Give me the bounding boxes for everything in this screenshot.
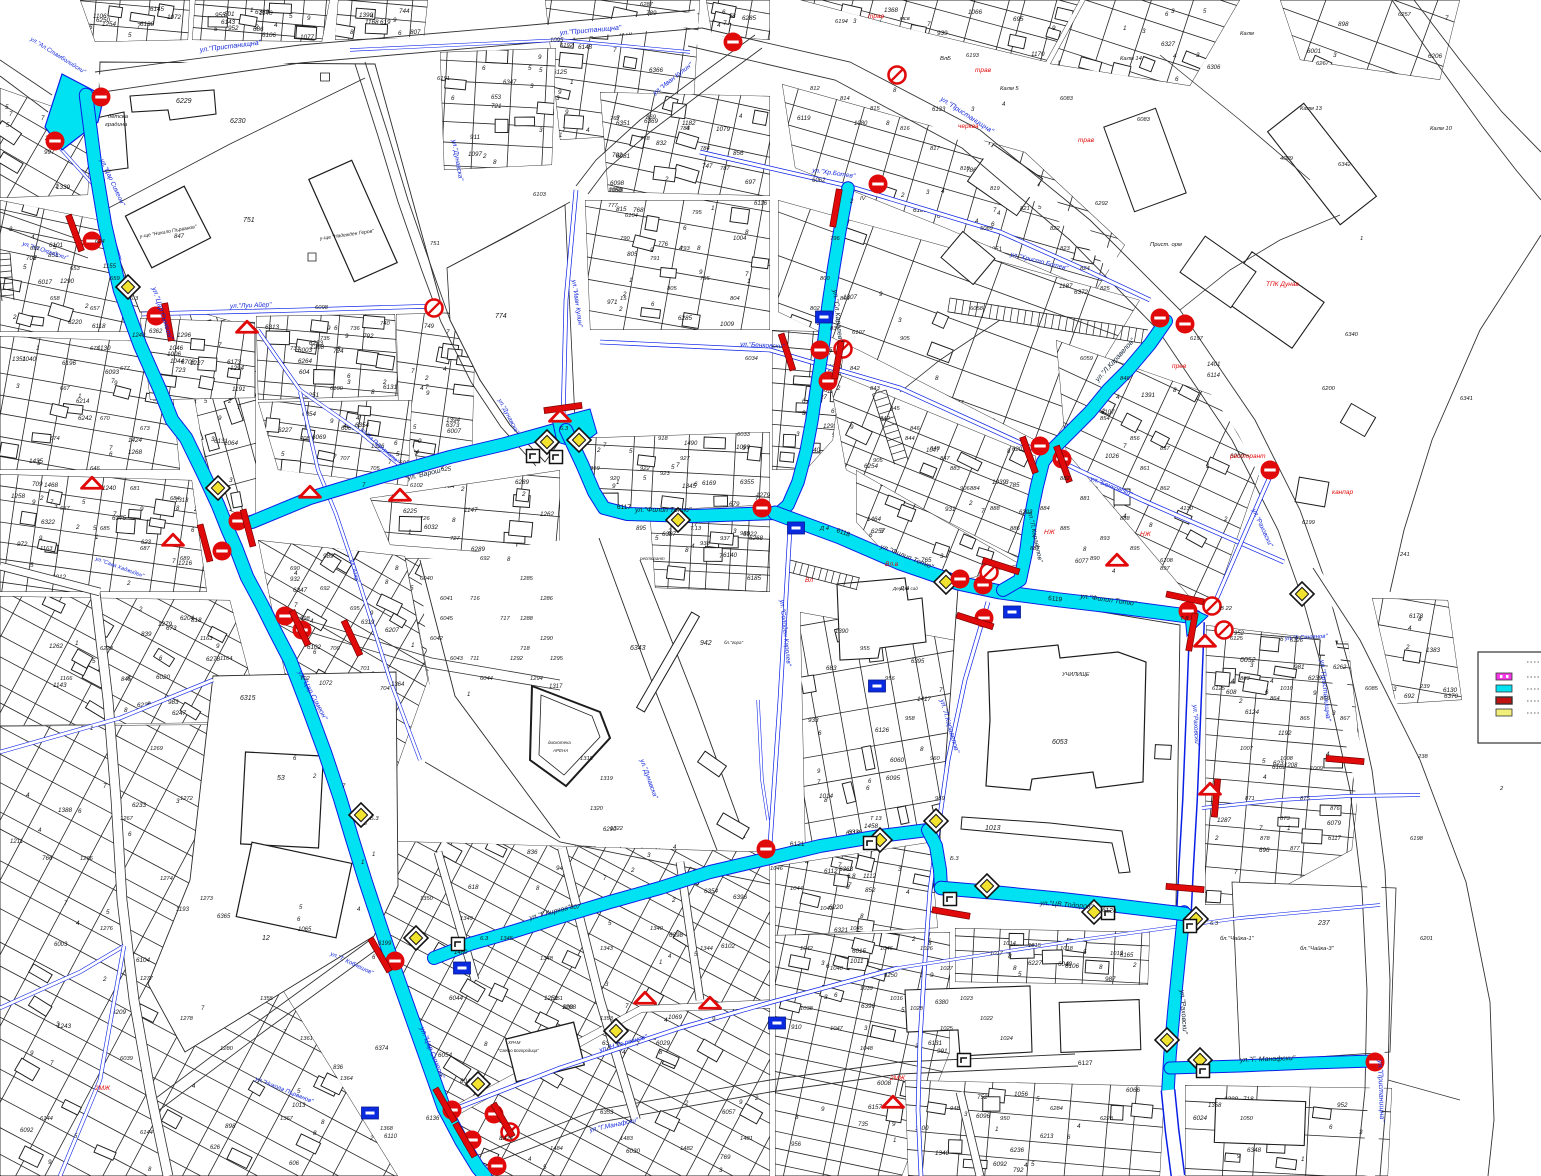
svg-text:823: 823 xyxy=(1060,246,1070,252)
svg-text:1262: 1262 xyxy=(540,511,555,518)
svg-text:6116: 6116 xyxy=(754,201,768,207)
svg-text:5: 5 xyxy=(214,26,218,33)
svg-text:7: 7 xyxy=(111,378,115,385)
svg-text:1266: 1266 xyxy=(80,856,94,862)
svg-text:619: 619 xyxy=(380,19,391,26)
svg-text:792: 792 xyxy=(363,333,374,340)
svg-text:9: 9 xyxy=(393,17,397,24)
svg-text:6104: 6104 xyxy=(136,957,151,964)
svg-text:684: 684 xyxy=(170,496,180,502)
svg-text:886: 886 xyxy=(1010,526,1020,532)
svg-text:937: 937 xyxy=(720,536,730,542)
svg-text:971: 971 xyxy=(607,299,618,306)
svg-text:2: 2 xyxy=(911,936,916,943)
svg-text:832: 832 xyxy=(656,140,667,147)
svg-text:241: 241 xyxy=(1399,552,1410,558)
svg-text:6236: 6236 xyxy=(1010,1147,1025,1154)
svg-text:897: 897 xyxy=(1160,566,1170,572)
svg-text:9: 9 xyxy=(930,972,934,979)
svg-text:3: 3 xyxy=(880,528,884,535)
svg-text:969: 969 xyxy=(935,796,945,802)
svg-text:884: 884 xyxy=(1040,506,1050,512)
svg-text:6.3: 6.3 xyxy=(1210,921,1219,927)
svg-text:6347: 6347 xyxy=(503,80,517,86)
svg-text:детска: детска xyxy=(108,114,129,120)
svg-text:6079: 6079 xyxy=(1327,820,1342,827)
svg-text:1079: 1079 xyxy=(716,126,731,133)
svg-text:9: 9 xyxy=(327,325,331,332)
svg-text:4: 4 xyxy=(1263,774,1267,781)
svg-text:ХРАМ: ХРАМ xyxy=(507,1040,521,1045)
svg-text:7: 7 xyxy=(562,127,566,134)
svg-text:5: 5 xyxy=(289,13,293,20)
svg-text:1163: 1163 xyxy=(200,636,213,642)
svg-text:прев: прев xyxy=(1172,363,1187,370)
svg-text:8: 8 xyxy=(1099,964,1103,971)
svg-text:3: 3 xyxy=(530,83,534,90)
svg-text:1481: 1481 xyxy=(740,1136,753,1142)
svg-text:1112: 1112 xyxy=(863,873,877,880)
svg-text:1: 1 xyxy=(629,277,633,284)
svg-text:6020: 6020 xyxy=(156,674,171,681)
svg-text:9: 9 xyxy=(426,390,430,397)
svg-text:5: 5 xyxy=(92,658,96,665)
svg-text:8: 8 xyxy=(860,913,864,920)
svg-text:4: 4 xyxy=(586,127,590,134)
svg-text:7: 7 xyxy=(218,342,222,349)
svg-text:646: 646 xyxy=(90,466,100,472)
svg-text:6114: 6114 xyxy=(1207,373,1221,379)
svg-text:735: 735 xyxy=(320,336,330,342)
svg-text:695: 695 xyxy=(350,606,360,612)
svg-text:6197: 6197 xyxy=(1190,336,1204,342)
svg-text:8: 8 xyxy=(685,547,689,554)
svg-text:687: 687 xyxy=(140,546,150,552)
svg-text:1340: 1340 xyxy=(650,926,664,932)
svg-text:6144: 6144 xyxy=(140,1130,153,1136)
svg-text:6: 6 xyxy=(394,440,398,447)
svg-text:1047: 1047 xyxy=(830,1026,844,1032)
svg-text:8: 8 xyxy=(852,873,856,880)
svg-text:1286: 1286 xyxy=(540,596,554,602)
svg-text:6077: 6077 xyxy=(1075,559,1089,565)
svg-text:848: 848 xyxy=(930,446,940,452)
svg-text:6083: 6083 xyxy=(1060,96,1074,102)
svg-text:1064: 1064 xyxy=(224,440,239,447)
svg-text:726: 726 xyxy=(420,516,430,522)
svg-text:мсв: мсв xyxy=(900,16,910,22)
svg-text:1288: 1288 xyxy=(520,616,534,622)
svg-text:6229: 6229 xyxy=(176,98,192,105)
svg-text:1043: 1043 xyxy=(820,906,834,912)
svg-text:2: 2 xyxy=(75,524,80,531)
svg-text:6362: 6362 xyxy=(149,329,163,335)
svg-text:1401: 1401 xyxy=(1207,362,1220,368)
svg-text:6104: 6104 xyxy=(625,213,638,219)
svg-text:8: 8 xyxy=(1149,522,1153,529)
svg-text:1048: 1048 xyxy=(860,1046,874,1052)
svg-text:трав: трав xyxy=(1078,137,1095,144)
svg-text:8: 8 xyxy=(920,746,924,753)
svg-text:1028: 1028 xyxy=(910,1006,924,1012)
svg-text:6126: 6126 xyxy=(1290,638,1304,644)
svg-text:800: 800 xyxy=(820,276,830,282)
svg-text:6044: 6044 xyxy=(480,676,493,682)
svg-text:6178: 6178 xyxy=(1409,613,1424,620)
svg-text:6185: 6185 xyxy=(747,575,762,582)
svg-text:2: 2 xyxy=(138,606,143,613)
svg-text:7: 7 xyxy=(294,602,298,609)
svg-text:1: 1 xyxy=(1123,25,1127,32)
svg-text:1192: 1192 xyxy=(1278,730,1292,737)
svg-text:6: 6 xyxy=(722,9,726,16)
svg-text:1364: 1364 xyxy=(391,682,405,688)
svg-text:1279: 1279 xyxy=(158,621,173,628)
svg-text:1322: 1322 xyxy=(610,826,624,832)
svg-text:676: 676 xyxy=(90,346,100,352)
svg-text:1009: 1009 xyxy=(1310,766,1324,772)
svg-text:1458: 1458 xyxy=(864,823,879,830)
svg-text:4: 4 xyxy=(1024,1162,1028,1169)
svg-text:938: 938 xyxy=(700,541,710,547)
svg-text:673: 673 xyxy=(140,426,150,432)
svg-text:4: 4 xyxy=(1173,53,1177,60)
svg-text:Вл: Вл xyxy=(805,577,813,584)
svg-text:6107: 6107 xyxy=(852,330,866,336)
svg-text:6396: 6396 xyxy=(861,1003,876,1010)
svg-text:2: 2 xyxy=(1214,835,1219,842)
svg-text:735: 735 xyxy=(858,1122,869,1128)
svg-text:53: 53 xyxy=(277,775,285,782)
svg-text:895: 895 xyxy=(636,526,647,532)
svg-text:8: 8 xyxy=(745,229,749,236)
svg-text:681: 681 xyxy=(130,486,140,492)
svg-text:871: 871 xyxy=(1245,796,1255,802)
svg-text:1038: 1038 xyxy=(800,1006,814,1012)
svg-text:9: 9 xyxy=(538,54,542,61)
svg-text:796: 796 xyxy=(830,236,840,242)
svg-text:1290: 1290 xyxy=(540,636,554,642)
svg-text:816: 816 xyxy=(900,126,910,132)
svg-text:9: 9 xyxy=(892,1121,896,1128)
svg-text:5: 5 xyxy=(528,65,532,72)
svg-text:3: 3 xyxy=(821,960,825,967)
svg-text:1077: 1077 xyxy=(300,34,315,41)
svg-text:1046: 1046 xyxy=(880,946,894,952)
svg-text:942: 942 xyxy=(700,640,712,647)
svg-text:866: 866 xyxy=(1320,696,1330,702)
svg-text:711: 711 xyxy=(470,656,479,662)
svg-text:6353: 6353 xyxy=(600,1110,614,1116)
svg-text:3: 3 xyxy=(211,436,215,443)
svg-text:5: 5 xyxy=(543,1164,547,1171)
svg-text:4: 4 xyxy=(691,543,695,550)
svg-text:5: 5 xyxy=(23,264,27,271)
svg-text:825: 825 xyxy=(1100,286,1110,292)
svg-text:840: 840 xyxy=(880,416,890,422)
svg-text:6: 6 xyxy=(451,95,455,102)
svg-text:624: 624 xyxy=(95,239,105,245)
svg-text:9: 9 xyxy=(558,89,562,96)
svg-text:836: 836 xyxy=(333,1065,344,1071)
svg-text:1013: 1013 xyxy=(292,1103,306,1109)
svg-text:1417: 1417 xyxy=(917,696,932,703)
svg-text:6: 6 xyxy=(482,65,486,72)
svg-text:1474: 1474 xyxy=(500,1136,513,1142)
svg-text:883: 883 xyxy=(950,466,960,472)
svg-text:948: 948 xyxy=(950,1106,960,1112)
svg-text:1045: 1045 xyxy=(850,926,864,932)
svg-text:950: 950 xyxy=(1000,1116,1010,1122)
svg-text:5: 5 xyxy=(671,464,675,471)
svg-text:807: 807 xyxy=(570,905,581,911)
svg-text:"Свето Богородица": "Свето Богородица" xyxy=(498,1048,539,1053)
svg-text:751: 751 xyxy=(430,241,440,247)
svg-text:683: 683 xyxy=(826,665,837,672)
svg-text:9: 9 xyxy=(32,499,36,506)
svg-text:1025: 1025 xyxy=(940,1026,954,1032)
svg-text:1391: 1391 xyxy=(1141,392,1155,399)
svg-text:1267: 1267 xyxy=(120,816,134,822)
svg-text:895: 895 xyxy=(1130,546,1140,552)
svg-text:6: 6 xyxy=(866,785,870,792)
svg-text:5: 5 xyxy=(1036,1096,1040,1103)
svg-text:Т 13: Т 13 xyxy=(870,816,882,822)
svg-text:6003: 6003 xyxy=(54,942,68,948)
svg-text:6042: 6042 xyxy=(430,636,444,642)
svg-text:3: 3 xyxy=(898,866,902,873)
svg-text:1022: 1022 xyxy=(980,1016,994,1022)
svg-text:898: 898 xyxy=(1338,21,1349,28)
svg-text:864: 864 xyxy=(1270,696,1280,702)
svg-text:6057: 6057 xyxy=(722,1110,736,1116)
svg-text:933: 933 xyxy=(808,717,819,724)
svg-text:3: 3 xyxy=(1171,8,1175,15)
svg-text:1268: 1268 xyxy=(128,449,143,456)
svg-text:1424: 1424 xyxy=(128,437,143,444)
svg-text:6033: 6033 xyxy=(737,432,751,438)
svg-text:4089: 4089 xyxy=(1280,156,1294,162)
svg-text:701: 701 xyxy=(360,666,370,672)
svg-text:626: 626 xyxy=(210,1145,221,1151)
svg-text:787: 787 xyxy=(720,166,730,172)
svg-text:1072: 1072 xyxy=(167,14,182,21)
svg-text:795: 795 xyxy=(692,210,702,216)
svg-text:6227: 6227 xyxy=(278,427,293,434)
svg-text:канпар: канпар xyxy=(1332,489,1353,496)
svg-text:9: 9 xyxy=(418,438,422,445)
svg-text:7: 7 xyxy=(50,1060,54,1067)
svg-text:4: 4 xyxy=(1270,678,1274,685)
svg-text:1: 1 xyxy=(36,346,39,352)
svg-text:692: 692 xyxy=(320,586,330,592)
svg-text:9: 9 xyxy=(650,247,654,254)
svg-text:1026: 1026 xyxy=(1105,453,1120,460)
svg-text:6347: 6347 xyxy=(293,587,308,594)
svg-text:6083: 6083 xyxy=(1137,117,1151,123)
svg-text:1294: 1294 xyxy=(230,365,245,372)
svg-text:956: 956 xyxy=(885,676,895,682)
svg-text:4: 4 xyxy=(443,366,447,373)
svg-text:7: 7 xyxy=(723,20,727,27)
svg-text:698: 698 xyxy=(300,616,310,622)
svg-text:1039: 1039 xyxy=(992,479,1007,486)
svg-text:9: 9 xyxy=(739,1099,743,1106)
svg-text:1383: 1383 xyxy=(1426,647,1441,654)
svg-text:1072: 1072 xyxy=(319,681,333,687)
svg-text:6144: 6144 xyxy=(40,1116,53,1122)
svg-text:989: 989 xyxy=(323,553,334,560)
svg-text:653: 653 xyxy=(70,266,80,272)
svg-text:бл."Чайка-1": бл."Чайка-1" xyxy=(1220,935,1255,942)
svg-text:6145: 6145 xyxy=(150,6,165,13)
svg-text:5: 5 xyxy=(6,122,10,129)
svg-text:653: 653 xyxy=(491,95,502,101)
svg-text:6204: 6204 xyxy=(180,615,195,622)
svg-text:1318: 1318 xyxy=(580,756,594,762)
svg-text:6201: 6201 xyxy=(1420,936,1433,942)
svg-text:6: 6 xyxy=(109,451,113,458)
svg-text:887: 887 xyxy=(1030,546,1040,552)
svg-text:9: 9 xyxy=(612,483,616,490)
svg-text:1: 1 xyxy=(408,529,412,536)
svg-text:2: 2 xyxy=(596,447,601,454)
svg-text:805: 805 xyxy=(667,286,677,292)
svg-text:9: 9 xyxy=(114,380,118,387)
svg-text:1: 1 xyxy=(372,852,375,858)
svg-text:1: 1 xyxy=(1287,825,1291,832)
svg-text:6106: 6106 xyxy=(262,32,277,39)
svg-text:8: 8 xyxy=(1008,953,1012,960)
svg-text:752: 752 xyxy=(977,1094,988,1101)
svg-text:769: 769 xyxy=(720,1154,731,1161)
svg-text:747: 747 xyxy=(702,163,713,170)
svg-text:Калм 13: Калм 13 xyxy=(1300,106,1323,112)
svg-text:1065: 1065 xyxy=(298,927,312,933)
svg-text:1262: 1262 xyxy=(49,643,64,650)
svg-text:1014: 1014 xyxy=(1003,941,1016,947)
svg-text:1066: 1066 xyxy=(968,9,983,16)
svg-text:6292: 6292 xyxy=(1095,201,1109,207)
svg-text:814: 814 xyxy=(840,96,850,102)
svg-text:733: 733 xyxy=(290,346,300,352)
svg-text:9: 9 xyxy=(48,1159,52,1166)
svg-text:2: 2 xyxy=(102,976,107,983)
svg-text:6372: 6372 xyxy=(1074,289,1089,296)
svg-text:7: 7 xyxy=(9,111,13,118)
svg-text:1350: 1350 xyxy=(420,896,434,902)
svg-text:3: 3 xyxy=(54,503,58,510)
svg-text:6053: 6053 xyxy=(1052,739,1068,746)
svg-text:952: 952 xyxy=(228,25,239,32)
svg-text:2: 2 xyxy=(460,486,465,493)
svg-text:7: 7 xyxy=(113,511,117,518)
svg-text:6254: 6254 xyxy=(864,463,879,470)
svg-text:7: 7 xyxy=(1445,15,1449,22)
svg-text:6124: 6124 xyxy=(1245,709,1260,716)
svg-text:7: 7 xyxy=(676,462,680,469)
svg-text:6348: 6348 xyxy=(1247,1147,1262,1154)
svg-text:6355: 6355 xyxy=(740,479,755,486)
svg-text:1368: 1368 xyxy=(380,1126,394,1132)
svg-text:5: 5 xyxy=(629,448,633,455)
svg-text:1: 1 xyxy=(1360,236,1363,242)
svg-text:6327: 6327 xyxy=(1161,41,1176,48)
svg-text:УЧИЛИЩЕ: УЧИЛИЩЕ xyxy=(1061,672,1090,678)
svg-text:1056: 1056 xyxy=(1014,1091,1029,1098)
svg-text:955: 955 xyxy=(860,646,870,652)
svg-text:ресторант: ресторант xyxy=(639,556,665,561)
svg-text:6148: 6148 xyxy=(578,44,593,51)
svg-text:6118: 6118 xyxy=(92,323,106,330)
svg-text:6017: 6017 xyxy=(38,279,53,286)
svg-text:723: 723 xyxy=(175,367,186,374)
svg-text:1039: 1039 xyxy=(860,986,874,992)
svg-text:8: 8 xyxy=(1013,965,1017,972)
svg-text:847: 847 xyxy=(174,234,185,240)
svg-text:1023: 1023 xyxy=(960,996,974,1002)
svg-text:6: 6 xyxy=(78,808,82,815)
svg-text:6066: 6066 xyxy=(1126,1087,1141,1094)
svg-text:674: 674 xyxy=(50,436,60,442)
svg-text:6054: 6054 xyxy=(438,1052,453,1059)
svg-text:1168: 1168 xyxy=(365,19,379,26)
svg-text:1191: 1191 xyxy=(232,386,246,393)
svg-text:6225: 6225 xyxy=(403,508,418,515)
svg-text:6119: 6119 xyxy=(797,115,811,122)
svg-text:Вл.в: Вл.в xyxy=(885,561,899,568)
svg-text:3: 3 xyxy=(796,431,800,438)
svg-text:8: 8 xyxy=(395,565,399,572)
svg-text:4: 4 xyxy=(274,22,278,29)
svg-text:6370: 6370 xyxy=(1444,693,1459,700)
svg-text:1317: 1317 xyxy=(549,684,563,690)
svg-text:6342: 6342 xyxy=(1338,162,1352,168)
svg-text:6121: 6121 xyxy=(790,841,805,848)
svg-text:238: 238 xyxy=(1417,754,1428,760)
svg-text:704: 704 xyxy=(380,686,390,692)
svg-text:6157: 6157 xyxy=(868,1104,883,1111)
svg-text:952: 952 xyxy=(1337,1102,1348,1109)
svg-text:918: 918 xyxy=(658,436,668,442)
svg-text:1016: 1016 xyxy=(890,996,904,1002)
svg-text:6069: 6069 xyxy=(312,434,327,441)
svg-text:1027: 1027 xyxy=(940,966,954,972)
svg-text:778: 778 xyxy=(640,136,650,142)
svg-text:градина: градина xyxy=(105,122,128,128)
svg-text:846: 846 xyxy=(910,426,920,432)
svg-text:6306: 6306 xyxy=(1207,65,1221,71)
svg-text:6112: 6112 xyxy=(824,868,838,875)
svg-text:5: 5 xyxy=(281,451,285,458)
svg-text:3: 3 xyxy=(1196,52,1200,59)
svg-text:6125: 6125 xyxy=(1212,686,1226,692)
svg-text:239: 239 xyxy=(1419,684,1430,690)
svg-text:815: 815 xyxy=(870,106,880,112)
svg-text:2: 2 xyxy=(671,897,676,904)
svg-text:дискотека: дискотека xyxy=(548,740,571,745)
svg-text:1344: 1344 xyxy=(700,946,713,952)
svg-text:6284: 6284 xyxy=(1050,1106,1063,1112)
svg-text:721: 721 xyxy=(491,103,502,110)
svg-text:6220: 6220 xyxy=(68,319,83,326)
svg-text:1240: 1240 xyxy=(132,333,146,339)
svg-text:878: 878 xyxy=(1260,836,1270,842)
svg-text:6119: 6119 xyxy=(1048,595,1063,603)
svg-text:1143: 1143 xyxy=(53,682,67,689)
svg-text:1097: 1097 xyxy=(468,151,483,158)
svg-text:Т.13: Т.13 xyxy=(690,526,702,532)
